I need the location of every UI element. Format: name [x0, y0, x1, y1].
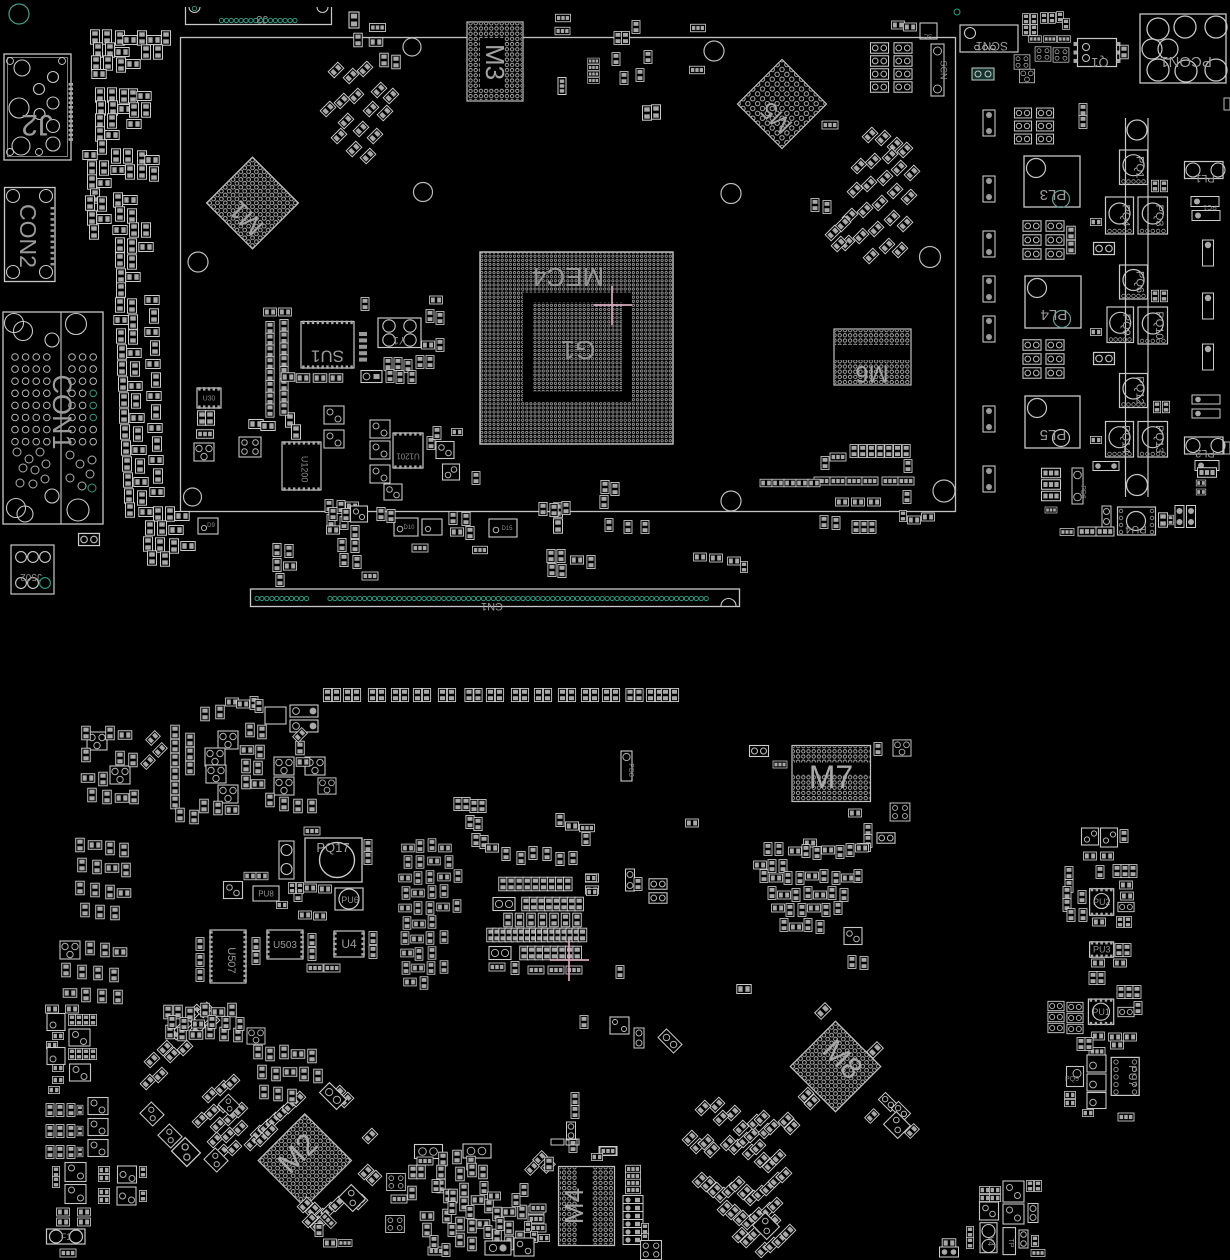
svg-text:PL4: PL4	[1041, 306, 1068, 323]
svg-text:PQ10: PQ10	[1153, 311, 1165, 339]
svg-text:D10: D10	[403, 525, 415, 531]
svg-text:TP: TP	[1007, 1239, 1014, 1248]
svg-text:Y4: Y4	[986, 1236, 995, 1246]
svg-text:F1: F1	[61, 1232, 72, 1242]
svg-text:PU3: PU3	[1093, 945, 1111, 955]
svg-text:PU4: PU4	[1125, 523, 1146, 535]
svg-text:CON2: CON2	[15, 204, 41, 268]
svg-text:D15: D15	[501, 526, 513, 532]
svg-text:CON1: CON1	[47, 374, 77, 449]
svg-text:SC: SC	[923, 32, 932, 38]
svg-text:PL5: PL5	[1040, 426, 1067, 443]
svg-text:PU6: PU6	[341, 895, 359, 905]
svg-text:PQ9: PQ9	[1065, 1076, 1079, 1083]
svg-text:Q1: Q1	[1091, 55, 1108, 70]
svg-text:PQ14: PQ14	[1120, 425, 1132, 453]
svg-text:U30: U30	[203, 395, 216, 402]
svg-text:PQ4: PQ4	[1120, 204, 1132, 226]
svg-text:PL2: PL2	[1195, 447, 1215, 459]
svg-text:PCON1: PCON1	[1160, 53, 1212, 70]
svg-text:PQ13: PQ13	[1153, 425, 1165, 453]
svg-text:U1201: U1201	[396, 451, 420, 460]
svg-text:PQ17: PQ17	[316, 840, 349, 855]
svg-text:M7: M7	[809, 759, 853, 795]
svg-text:SCN: SCN	[939, 60, 949, 79]
svg-text:PL1: PL1	[1195, 172, 1215, 184]
svg-text:U507: U507	[225, 947, 237, 973]
svg-text:PD6: PD6	[1079, 485, 1086, 499]
svg-text:PU1: PU1	[1092, 1007, 1110, 1017]
svg-text:MEC4: MEC4	[532, 262, 604, 292]
svg-text:U1200: U1200	[300, 456, 310, 483]
svg-text:M3: M3	[480, 44, 510, 80]
svg-text:J3: J3	[256, 13, 268, 25]
svg-text:PU7: PU7	[1126, 1065, 1138, 1086]
svg-text:J2: J2	[21, 108, 53, 141]
svg-text:U4: U4	[341, 937, 357, 951]
svg-text:CN1: CN1	[481, 600, 503, 612]
svg-text:M6: M6	[855, 360, 888, 387]
svg-text:PQ12: PQ12	[1134, 376, 1146, 404]
svg-text:PC1: PC1	[1203, 203, 1217, 210]
svg-text:Y1: Y1	[393, 334, 406, 346]
svg-text:PD8: PD8	[627, 763, 634, 777]
svg-text:PQ9: PQ9	[1120, 314, 1132, 336]
svg-text:PL3: PL3	[1040, 186, 1067, 203]
svg-text:SU1: SU1	[311, 347, 344, 366]
svg-text:G1: G1	[561, 335, 596, 365]
svg-text:PQ6: PQ6	[1134, 271, 1146, 293]
svg-text:J502: J502	[20, 571, 42, 582]
svg-text:U503: U503	[273, 940, 297, 951]
svg-text:PQ3: PQ3	[1153, 204, 1165, 226]
svg-text:PQ1: PQ1	[1134, 156, 1146, 178]
svg-text:PU8: PU8	[258, 890, 274, 899]
svg-text:M4: M4	[559, 1188, 589, 1224]
svg-text:D9: D9	[207, 523, 215, 529]
